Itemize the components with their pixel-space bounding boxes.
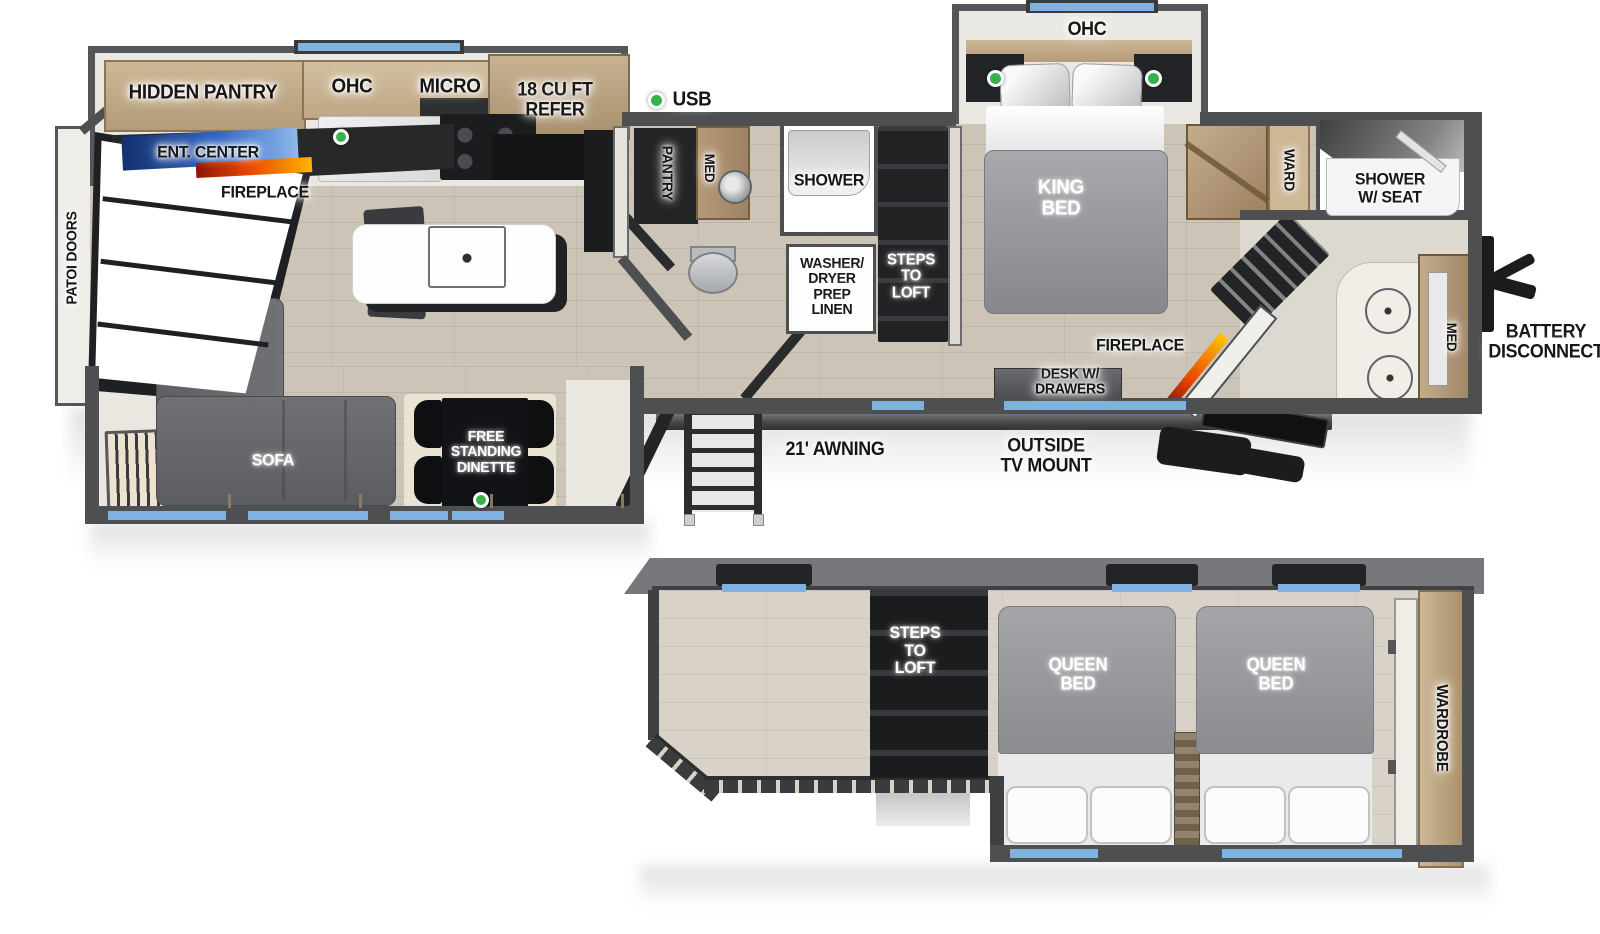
- label-tv-mount: OUTSIDE TV MOUNT: [1000, 436, 1091, 475]
- label-desk: DESK W/ DRAWERS: [1035, 367, 1105, 398]
- entry-steps-rail: [754, 404, 762, 516]
- usb-dot-bedroom-right: [1145, 70, 1162, 87]
- queen-bed-2-pillow: [1288, 786, 1370, 844]
- usb-dot-dinette: [473, 492, 489, 508]
- sofa-seam: [344, 400, 347, 500]
- label-fireplace-living: FIREPLACE: [221, 183, 309, 201]
- label-hidden-pantry: HIDDEN PANTRY: [129, 83, 278, 104]
- label-ohc-kitchen: OHC: [332, 77, 373, 98]
- slide-window: [390, 511, 448, 520]
- sofa-slide-valance: [100, 494, 630, 508]
- mid-bath-wall: [613, 126, 629, 258]
- loft-vent-window: [722, 584, 806, 592]
- loft-right-wall: [1462, 590, 1474, 858]
- label-loft-steps: STEPS TO LOFT: [890, 624, 941, 677]
- wardrobe-hinge: [1388, 640, 1396, 654]
- loft-rail-wall: [990, 776, 1004, 854]
- queen-bed-1-pillow: [1090, 786, 1172, 844]
- steps-side-strip: [948, 126, 962, 346]
- rv-floorplan-canvas: HIDDEN PANTRY OHC MICRO 18 CU FT REFER U…: [0, 0, 1600, 934]
- usb-dot-bedroom-left: [987, 70, 1004, 87]
- sofa-slide-end: [566, 380, 630, 506]
- slide-window: [248, 511, 368, 520]
- loft-bottom-window: [1222, 849, 1402, 858]
- label-queen-bed-2: QUEEN BED: [1247, 655, 1306, 692]
- ground-shadow-slide: [90, 522, 650, 577]
- bottom-window-2: [1004, 401, 1186, 410]
- label-refer: 18 CU FT REFER: [517, 80, 592, 119]
- label-shower-w-seat: SHOWER W/ SEAT: [1355, 171, 1425, 206]
- queen-bed-1-pillow: [1006, 786, 1088, 844]
- label-micro: MICRO: [419, 77, 480, 98]
- loft-bottom-window: [1010, 849, 1098, 858]
- label-sofa-main: SOFA: [252, 451, 294, 469]
- label-med-front: MED: [1445, 323, 1459, 351]
- label-dinette: FREE STANDING DINETTE: [451, 429, 521, 475]
- vanity-sink: [1365, 288, 1411, 334]
- loft-vent: [1272, 564, 1366, 586]
- label-ward: WARD: [1281, 149, 1296, 191]
- label-washer-dryer: WASHER/ DRYER PREP LINEN: [800, 256, 864, 318]
- label-med-mid: MED: [703, 154, 717, 182]
- king-bed-mattress: [984, 150, 1168, 314]
- usb-dot-annotation: [648, 92, 665, 109]
- top-wall-mid: [622, 112, 956, 126]
- label-patio-doors: PATOI DOORS: [64, 211, 79, 304]
- front-wall: [1468, 112, 1482, 414]
- loft-steps: [870, 590, 988, 778]
- entry-steps-rail: [684, 404, 692, 516]
- label-sofa-chaise: SOFA: [200, 363, 242, 381]
- entry-steps: [692, 410, 754, 512]
- nightstand: [1134, 54, 1192, 102]
- loft-vent-window: [1278, 584, 1360, 592]
- dinette-chair: [414, 400, 442, 448]
- label-shower-mid: SHOWER: [794, 171, 864, 189]
- queen-bed-2-pillow: [1204, 786, 1286, 844]
- label-queen-bed-1: QUEEN BED: [1049, 655, 1108, 692]
- steps-to-loft-main: [878, 126, 948, 342]
- dinette-chair: [526, 400, 554, 448]
- island-sink: [428, 226, 506, 288]
- label-ohc-bedroom: OHC: [1068, 20, 1107, 40]
- kitchen-slide-window: [298, 43, 460, 51]
- loft-vent: [716, 564, 812, 586]
- entry-steps-foot: [753, 514, 764, 526]
- toilet: [688, 252, 738, 294]
- entry-steps-foot: [684, 514, 695, 526]
- loft-vent-window: [1112, 584, 1192, 592]
- label-wardrobe: WARDROBE: [1433, 684, 1449, 771]
- label-ent-center: ENT. CENTER: [157, 143, 259, 161]
- wardrobe-doors: [1394, 598, 1418, 858]
- label-pantry: PANTRY: [659, 146, 674, 201]
- label-steps-main: STEPS TO LOFT: [887, 252, 935, 301]
- slide-window: [108, 511, 226, 520]
- label-usb: USB: [673, 90, 712, 111]
- loft-rail: [704, 776, 1000, 793]
- sofa-slide-wall-right: [630, 366, 644, 524]
- label-king-bed: KING BED: [1038, 177, 1084, 218]
- king-slide-window: [1030, 3, 1154, 11]
- wardrobe-hinge: [1388, 760, 1396, 774]
- label-fireplace-bedroom: FIREPLACE: [1096, 336, 1184, 354]
- vanity-sink: [1367, 355, 1413, 401]
- ground-shadow-loft: [640, 866, 1490, 918]
- hitch-arm: [1492, 252, 1536, 282]
- bath-sink: [718, 170, 752, 204]
- label-awning: 21' AWNING: [785, 440, 884, 460]
- slide-window: [452, 511, 504, 520]
- label-battery-disconnect: BATTERY DISCONNECT: [1488, 322, 1600, 361]
- bottom-window-1: [872, 401, 924, 410]
- loft-left-wall: [648, 590, 659, 740]
- sofa-slide-wall-left: [85, 366, 99, 524]
- usb-dot-kitchen: [333, 129, 349, 145]
- loft-vent: [1106, 564, 1198, 586]
